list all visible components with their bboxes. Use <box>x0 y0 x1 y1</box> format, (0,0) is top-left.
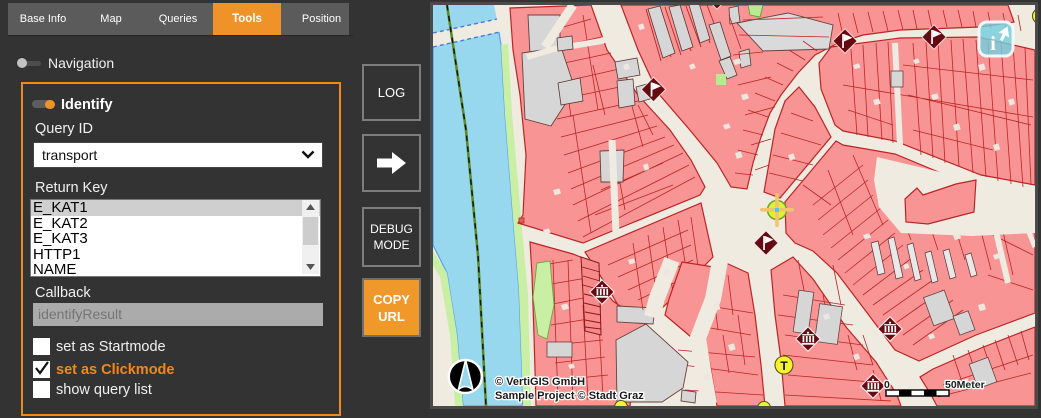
svg-text:i: i <box>990 33 996 55</box>
svg-text:© VertiGIS GmbH: © VertiGIS GmbH <box>495 376 585 388</box>
svg-text:0: 0 <box>884 379 890 391</box>
svg-text:Sample Project © Stadt Graz: Sample Project © Stadt Graz <box>495 390 644 402</box>
svg-text:T: T <box>780 359 788 373</box>
svg-text:50Meter: 50Meter <box>945 379 985 391</box>
